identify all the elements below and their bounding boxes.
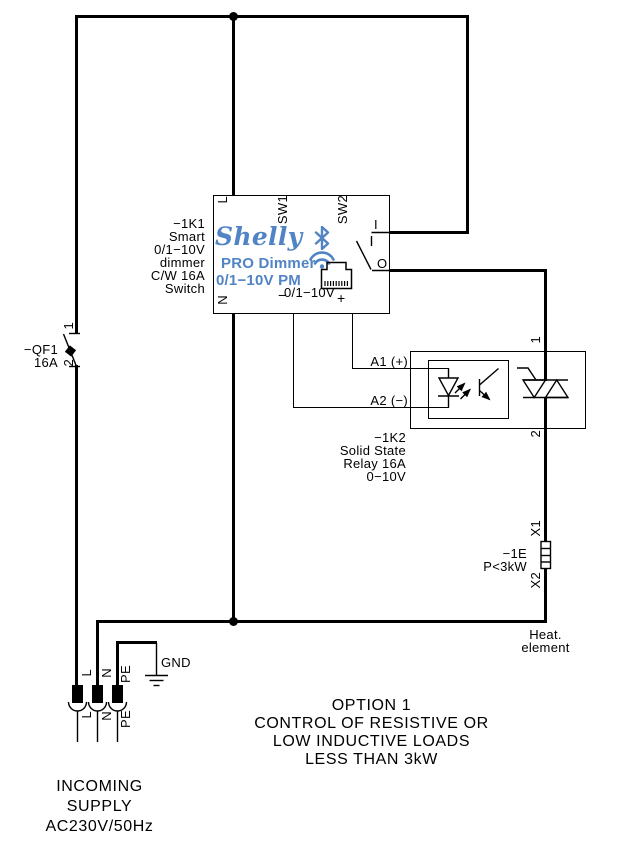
supply-n-label-upper: N — [100, 668, 113, 678]
heater-caption-block: Heat. element — [500, 628, 591, 654]
bluetooth-icon — [313, 226, 331, 250]
ssr-designator-line: 0−10V — [306, 470, 406, 483]
incoming-supply-block: INCOMING SUPPLY AC230V/50Hz — [19, 777, 180, 837]
dimmer-model-line1: PRO Dimmer — [221, 256, 316, 271]
heater-terminal-x1-label: X1 — [529, 520, 542, 537]
dimmer-sw2-label: SW2 — [336, 195, 349, 224]
ssr-designator-block: −1K2 Solid State Relay 16A 0−10V — [306, 431, 406, 483]
dimmer-sw1-label: SW1 — [276, 195, 289, 224]
dimmer-terminal-i-label: I — [374, 218, 378, 231]
heater-terminal-x2-label: X2 — [529, 572, 542, 589]
ethernet-icon — [320, 261, 353, 290]
ssr-terminal-1-label: 1 — [529, 336, 542, 344]
dimmer-designator-line: Switch — [113, 282, 205, 295]
heater-caption-line: element — [500, 641, 591, 654]
breaker-rating: 16A — [6, 356, 58, 369]
wire-i-riser — [466, 15, 469, 234]
incoming-supply-line: SUPPLY — [19, 797, 180, 817]
wire-top-bus — [75, 15, 469, 18]
ssr-terminal-2-label: 2 — [529, 430, 542, 438]
breaker-label-block: −QF1 16A — [6, 343, 58, 369]
dimmer-terminal-n-label: N — [216, 295, 229, 305]
dimmer-analog-minus-label: − — [278, 289, 286, 302]
schematic-canvas: −1K1 Smart 0/1−10V dimmer C/W 16A Switch… — [0, 0, 623, 855]
shelly-logo: Shelly — [215, 224, 302, 249]
supply-pe-label-upper: PE — [119, 665, 132, 683]
supply-n-label-lower: N — [100, 711, 113, 721]
ssr-a1-label: A1 (+) — [340, 355, 408, 368]
wire-dimmer-l-drop — [232, 15, 235, 196]
heater-designator-block: −1E P<3kW — [457, 547, 527, 573]
heater-resistor-symbol — [541, 542, 551, 569]
option-note-line: LOW INDUCTIVE LOADS — [240, 733, 503, 751]
dimmer-analog-plus-label: + — [337, 292, 345, 305]
option-note-line: CONTROL OF RESISTIVE OR — [240, 715, 503, 733]
wire-l-supply-upper — [75, 15, 78, 333]
dimmer-terminal-l-label: L — [216, 196, 229, 204]
wire-neutral-bus — [96, 620, 547, 623]
incoming-supply-line: INCOMING — [19, 777, 180, 797]
ssr-inner-box — [428, 360, 509, 419]
wire-l-supply-lower — [75, 365, 78, 686]
wire-i-link — [389, 231, 469, 234]
supply-pe-label-lower: PE — [119, 710, 132, 728]
gnd-label: GND — [161, 656, 191, 669]
breaker-terminal-1-label: 1 — [62, 322, 75, 330]
wire-pe-link — [116, 641, 157, 644]
option-note-line: OPTION 1 — [240, 697, 503, 715]
option-note-block: OPTION 1 CONTROL OF RESISTIVE OR LOW IND… — [240, 697, 503, 769]
dimmer-terminal-o-label: O — [377, 257, 387, 270]
ssr-a2-label: A2 (−) — [340, 394, 408, 407]
heater-rating: P<3kW — [457, 560, 527, 573]
wire-heater-return — [544, 568, 547, 623]
wire-o-link — [389, 269, 547, 272]
wire-dimmer-n-drop — [232, 313, 235, 623]
dimmer-designator-block: −1K1 Smart 0/1−10V dimmer C/W 16A Switch — [113, 217, 205, 295]
incoming-supply-line: AC230V/50Hz — [19, 817, 180, 837]
option-note-line: LESS THAN 3kW — [240, 751, 503, 769]
supply-l-label-upper: L — [80, 669, 93, 677]
breaker-terminal-2-label: 2 — [62, 359, 75, 367]
wire-analog-minus-drop — [293, 313, 294, 408]
supply-l-label-lower: L — [80, 711, 93, 719]
